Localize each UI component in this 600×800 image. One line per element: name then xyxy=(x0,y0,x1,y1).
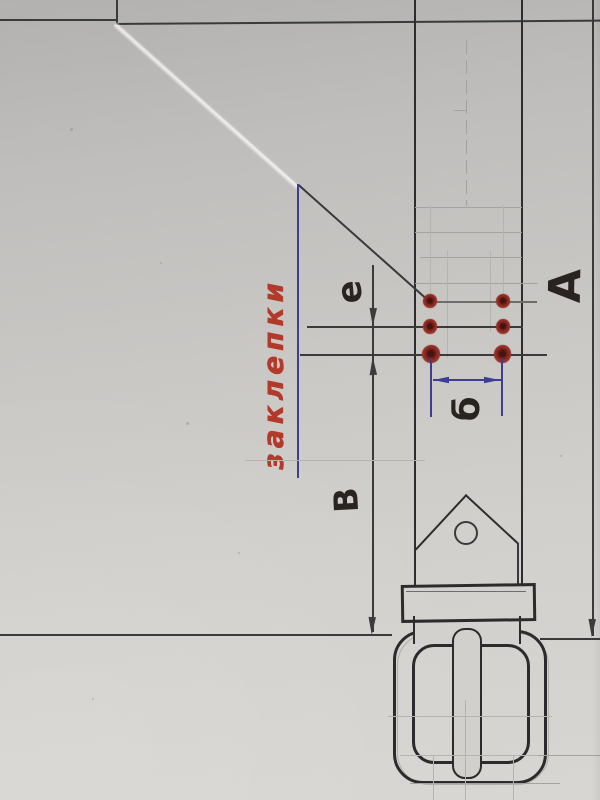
construction-vertical xyxy=(433,756,434,800)
construction-horizontal xyxy=(388,716,552,717)
belt-tip-side-line xyxy=(517,543,519,585)
sheet-border-line-top-left xyxy=(0,19,118,21)
paper-speck xyxy=(92,698,94,700)
paper-speck xyxy=(70,128,73,131)
stitch-line xyxy=(420,257,522,258)
dim-label-b: б xyxy=(449,395,487,424)
paper-speck xyxy=(186,422,189,425)
edge-shading xyxy=(592,0,600,800)
paper-speck xyxy=(238,552,240,554)
stitch-line xyxy=(415,232,522,233)
construction-vertical xyxy=(490,250,491,332)
dim-label-e: е xyxy=(332,279,368,305)
faint-guide-line xyxy=(245,460,425,461)
rivet xyxy=(496,319,510,334)
dim-label-a: А xyxy=(544,269,589,304)
rivets-label: заклепки xyxy=(257,278,290,470)
rivet-row-line-1 xyxy=(433,301,537,303)
rivet-column-guide-right xyxy=(503,205,504,300)
paper-speck xyxy=(160,262,162,264)
belt-right-edge xyxy=(521,0,523,585)
rivet-row-line-2 xyxy=(307,326,523,328)
construction-vertical xyxy=(447,250,448,358)
rivet xyxy=(423,319,437,334)
blue-extension-right xyxy=(501,358,503,416)
construction-vertical xyxy=(513,756,514,800)
belt-tip-hole xyxy=(454,521,478,545)
dim-label-v: В xyxy=(329,487,363,514)
blue-arrow-left xyxy=(433,377,449,383)
paper-speck xyxy=(560,455,562,457)
belt-right-edge-lower xyxy=(519,616,521,644)
rivet xyxy=(496,294,510,308)
label-underline xyxy=(297,184,299,478)
construction-horizontal xyxy=(400,755,545,756)
stitch-line xyxy=(415,283,538,284)
belt-loop-inner-line xyxy=(406,591,526,592)
crease-highlight xyxy=(113,22,300,189)
bottom-line-left xyxy=(0,634,392,636)
arrow-e-top xyxy=(369,308,377,326)
center-line-tick xyxy=(454,110,467,111)
blue-arrow-right xyxy=(484,377,500,383)
belt-center-line xyxy=(466,40,467,206)
belt-loop xyxy=(401,583,537,623)
rivet-column-guide-left xyxy=(430,205,431,300)
rivet xyxy=(423,294,437,308)
blue-extension-left xyxy=(430,358,432,417)
belt-left-edge-lower xyxy=(413,616,415,644)
buckle-prong xyxy=(452,628,482,779)
belt-left-edge xyxy=(414,0,416,585)
bottom-line-right xyxy=(540,638,600,640)
construction-horizontal xyxy=(538,755,600,756)
construction-vertical xyxy=(465,700,466,800)
sheet-border-line-top-right xyxy=(117,20,600,25)
belt-drawing-photo: заклепки е б В А xyxy=(0,0,600,800)
stitch-line xyxy=(415,207,522,208)
arrow-b-bottom xyxy=(368,617,376,635)
arrow-e-bottom xyxy=(369,357,377,375)
